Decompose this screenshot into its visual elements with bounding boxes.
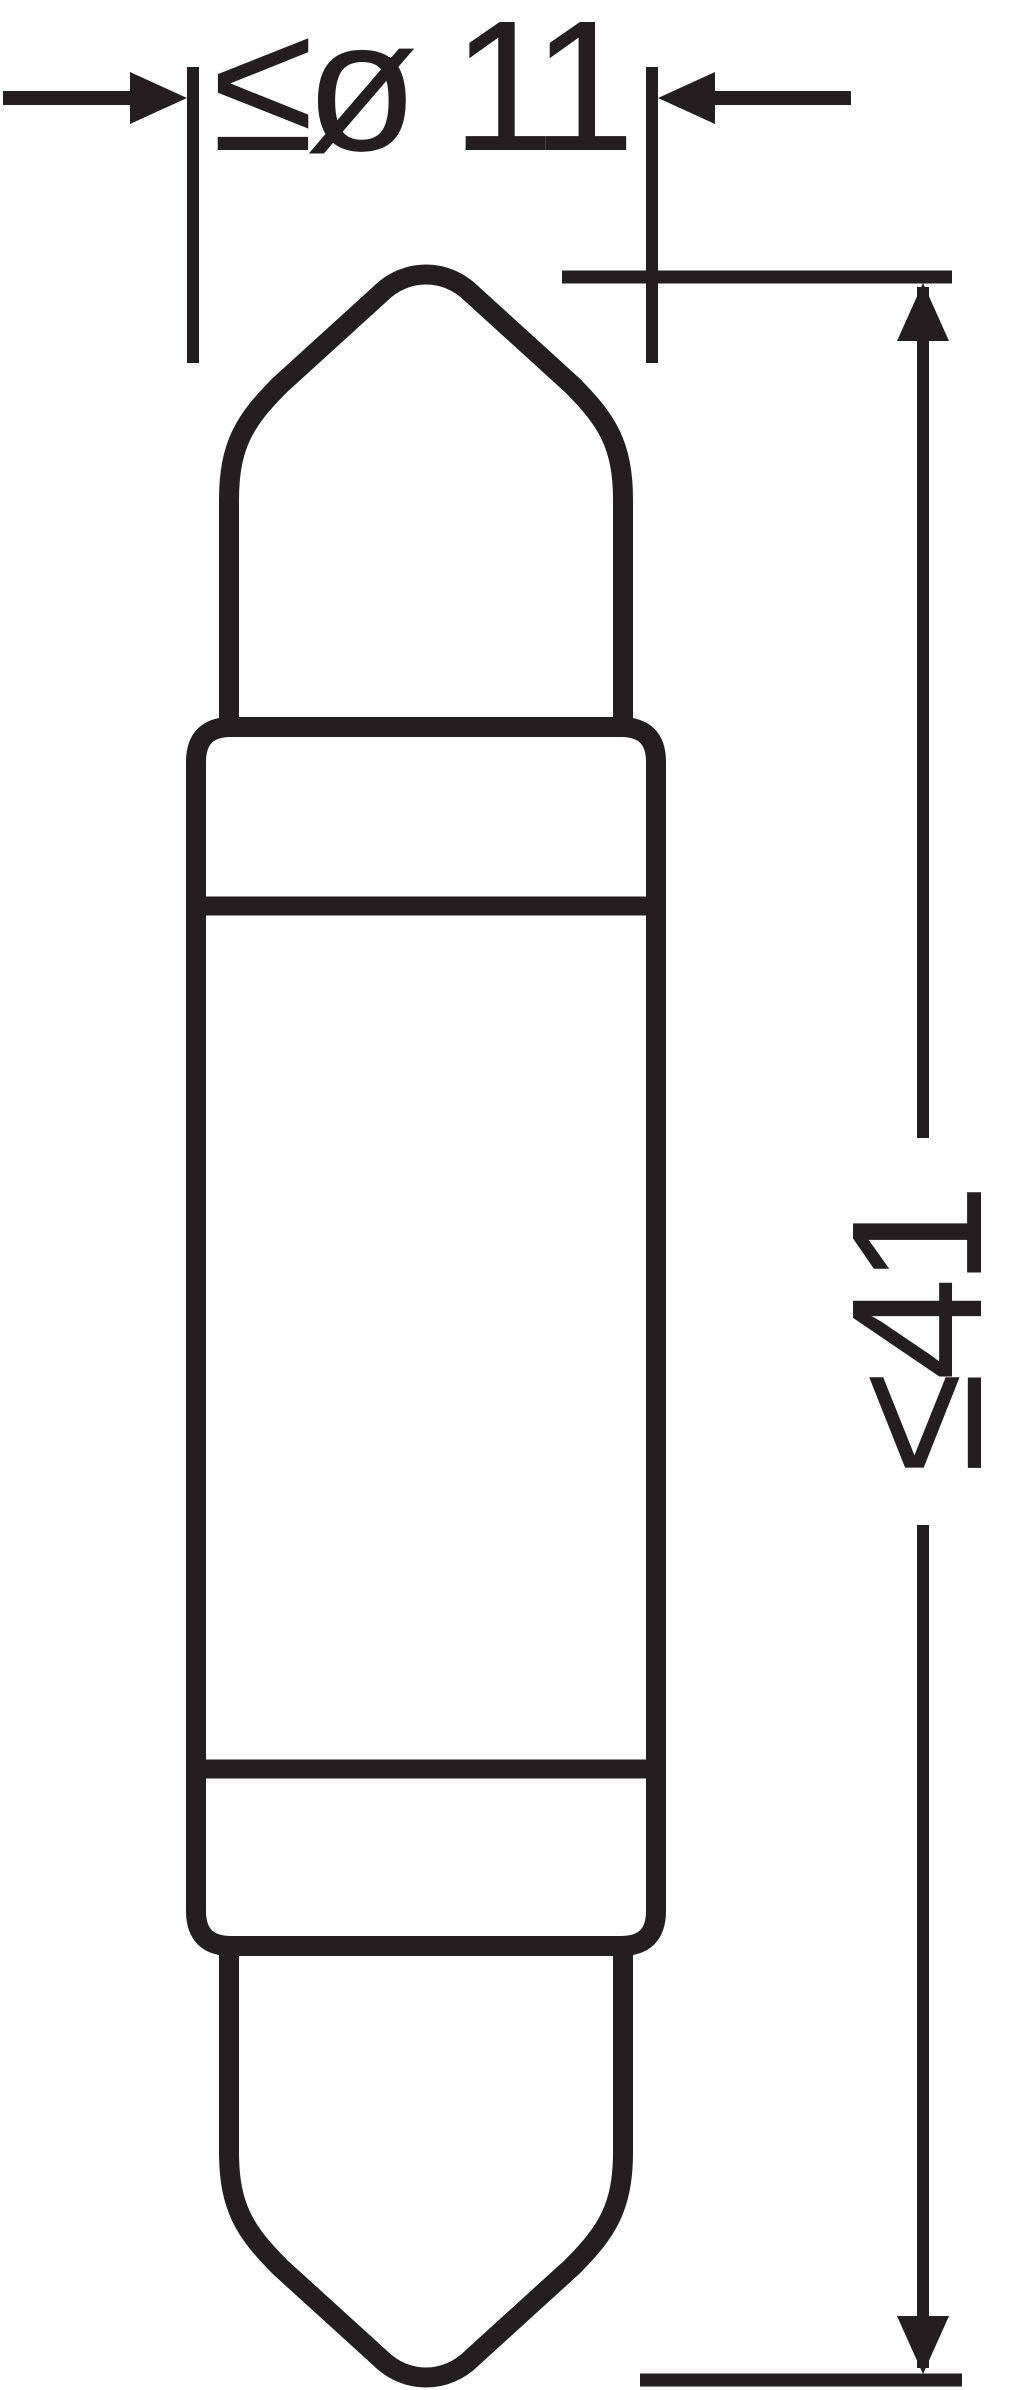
arrow-up-icon [897, 283, 949, 341]
bulb-top-dome [229, 275, 623, 738]
bulb-outline [187, 275, 665, 2378]
arrow-left-icon [658, 72, 715, 124]
bulb-bottom-dome [229, 1937, 623, 2378]
arrow-down-icon [897, 2316, 949, 2374]
diameter-label: ≤ø 11 [212, 0, 626, 180]
festoon-bulb-drawing: ≤ø 11 ≤41 [0, 0, 1024, 2390]
length-label: ≤41 [825, 1192, 1011, 1473]
arrow-right-icon [130, 72, 187, 124]
